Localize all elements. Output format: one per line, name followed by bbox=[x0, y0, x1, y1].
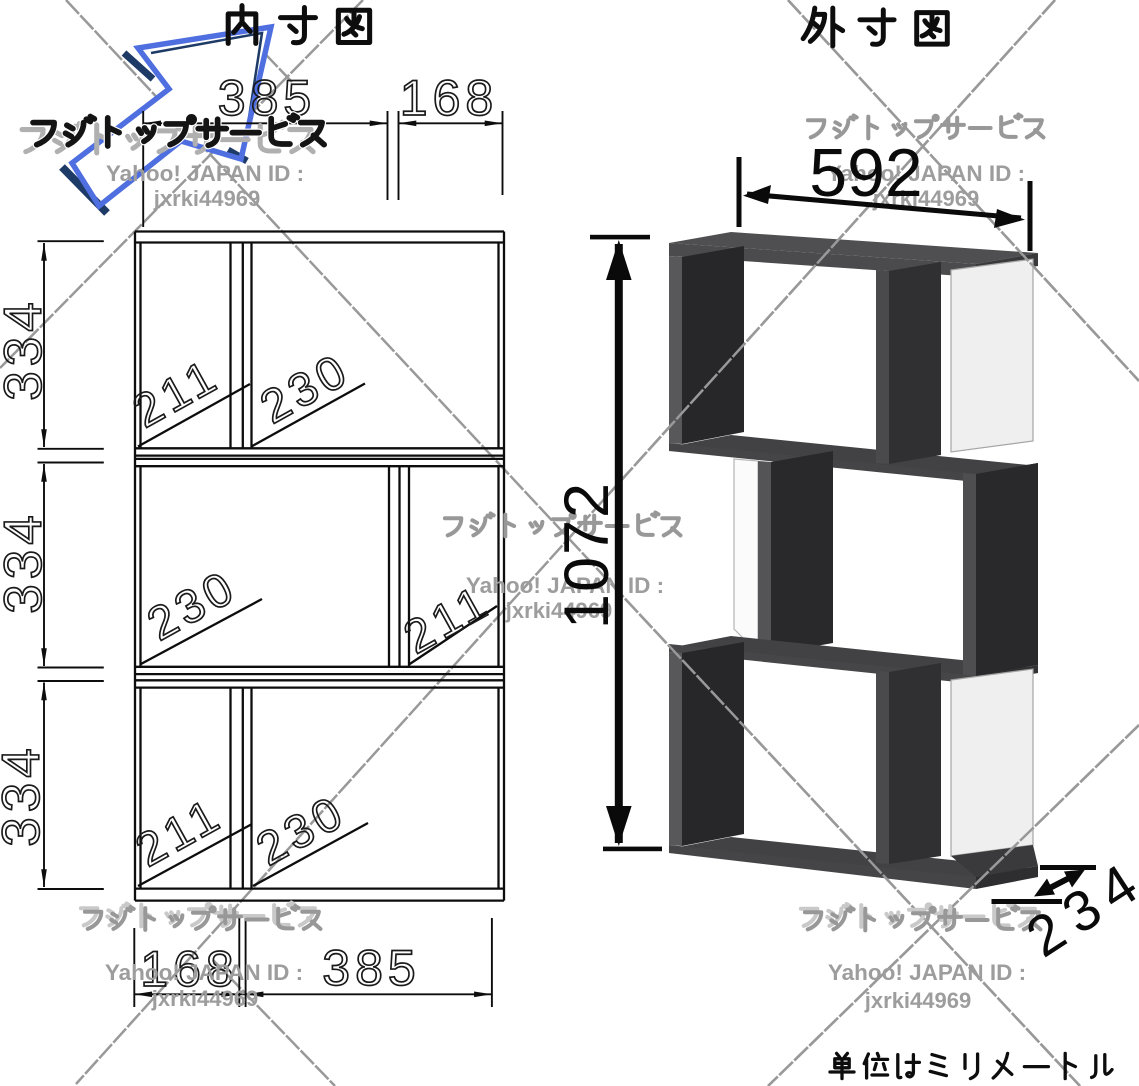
svg-text:334: 334 bbox=[0, 743, 51, 846]
svg-text:334: 334 bbox=[0, 510, 53, 613]
svg-text:385: 385 bbox=[218, 70, 316, 126]
svg-text:Yahoo! JAPAN ID :: Yahoo! JAPAN ID : bbox=[105, 960, 303, 985]
svg-text:Yahoo! JAPAN ID :: Yahoo! JAPAN ID : bbox=[106, 161, 304, 186]
svg-text:334: 334 bbox=[0, 297, 53, 400]
svg-text:jxrki44969: jxrki44969 bbox=[864, 988, 971, 1013]
svg-text:230: 230 bbox=[251, 342, 358, 434]
svg-text:168: 168 bbox=[400, 70, 498, 126]
svg-text:jxrki44969: jxrki44969 bbox=[151, 986, 258, 1011]
svg-text:1072: 1072 bbox=[552, 481, 622, 629]
svg-text:230: 230 bbox=[247, 784, 354, 876]
svg-text:385: 385 bbox=[322, 940, 420, 996]
svg-text:Yahoo! JAPAN ID :: Yahoo! JAPAN ID : bbox=[828, 960, 1026, 985]
svg-text:jxrki44969: jxrki44969 bbox=[153, 186, 260, 211]
